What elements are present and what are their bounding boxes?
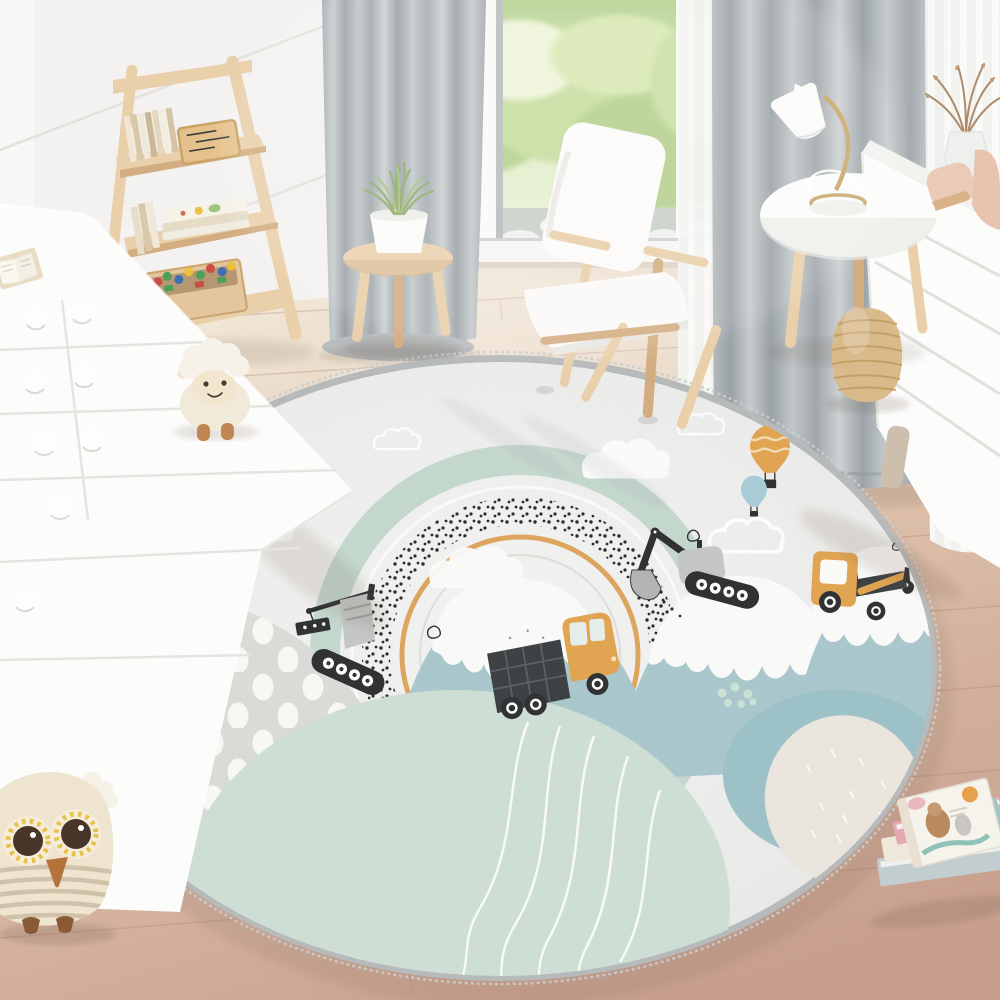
playroom-scene: [0, 0, 1000, 1000]
playroom-photo: [0, 0, 1000, 1000]
